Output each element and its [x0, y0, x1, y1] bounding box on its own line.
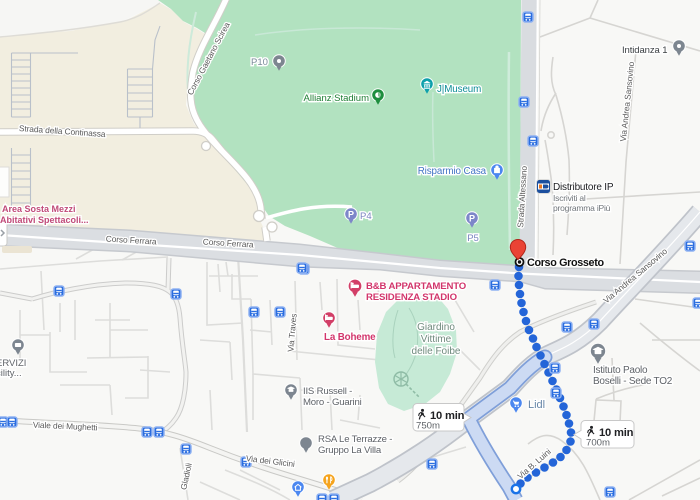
svg-text:Giardino: Giardino [417, 322, 455, 333]
svg-text:RSA Le Terrazze -: RSA Le Terrazze - [318, 434, 392, 445]
svg-text:Risparmio Casa: Risparmio Casa [418, 166, 487, 177]
svg-text:Iscriviti al: Iscriviti al [553, 193, 586, 203]
svg-text:P10: P10 [251, 57, 268, 68]
svg-text:J|Museum: J|Museum [437, 84, 481, 95]
svg-text:B&B APPARTAMENTO: B&B APPARTAMENTO [366, 281, 467, 292]
svg-text:IIS Russell -: IIS Russell - [303, 386, 352, 397]
svg-text:Corso Grosseto: Corso Grosseto [527, 257, 604, 269]
svg-text:Intidanza 1: Intidanza 1 [622, 45, 667, 56]
svg-text:cility...: cility... [0, 368, 22, 379]
svg-text:Distributore IP: Distributore IP [553, 182, 614, 193]
svg-text:P5: P5 [467, 233, 479, 244]
svg-text:P4: P4 [360, 211, 372, 222]
svg-text:delle Foibe: delle Foibe [412, 346, 461, 357]
svg-text:P: P [348, 210, 354, 220]
svg-text:Istituto Paolo: Istituto Paolo [593, 365, 648, 376]
svg-text:P: P [469, 214, 475, 224]
svg-text:Abitativi Spettacoli...: Abitativi Spettacoli... [0, 215, 89, 225]
svg-text:700m: 700m [586, 438, 610, 449]
svg-text:Vittime: Vittime [421, 334, 452, 345]
svg-text:750m: 750m [416, 421, 440, 432]
svg-text:Gruppo La Villa: Gruppo La Villa [318, 445, 382, 456]
svg-text:Lidl: Lidl [528, 399, 545, 411]
svg-text:Moro - Guarini: Moro - Guarini [303, 397, 362, 408]
svg-text:RESIDENZA STADIO: RESIDENZA STADIO [366, 292, 458, 303]
svg-text:Area Sosta Mezzi: Area Sosta Mezzi [2, 204, 76, 214]
svg-text:Boselli - Sede TO2: Boselli - Sede TO2 [593, 376, 673, 387]
svg-text:La Boheme: La Boheme [324, 332, 376, 343]
svg-text:programma iPiù: programma iPiù [553, 203, 611, 213]
svg-text:Allianz Stadium: Allianz Stadium [304, 93, 370, 104]
